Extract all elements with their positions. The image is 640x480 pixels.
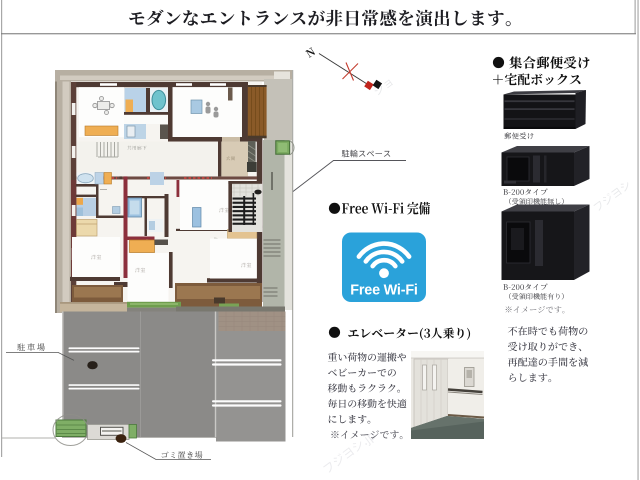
svg-text:Free Wi-Fi: Free Wi-Fi bbox=[350, 283, 417, 299]
